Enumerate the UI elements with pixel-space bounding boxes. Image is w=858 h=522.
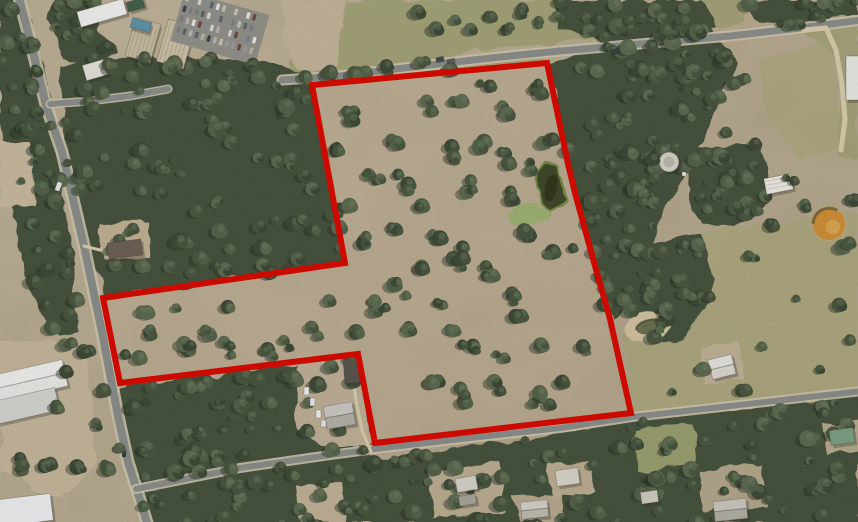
- aerial-map-image: [0, 0, 858, 522]
- round-dam: [810, 205, 848, 243]
- vehicle: [316, 410, 321, 418]
- house-south-2: [520, 499, 551, 522]
- vehicle: [611, 48, 621, 54]
- aerial-photo-stage: [0, 0, 858, 522]
- vehicle: [682, 172, 686, 176]
- notch-house: [323, 401, 358, 432]
- green-roof-house: [829, 427, 857, 448]
- building-right-edge: [846, 56, 858, 103]
- vehicle: [310, 398, 315, 406]
- vehicle: [321, 420, 326, 427]
- house-south-1: [555, 467, 582, 489]
- vehicle: [304, 387, 309, 395]
- gray-roof-house: [713, 498, 750, 522]
